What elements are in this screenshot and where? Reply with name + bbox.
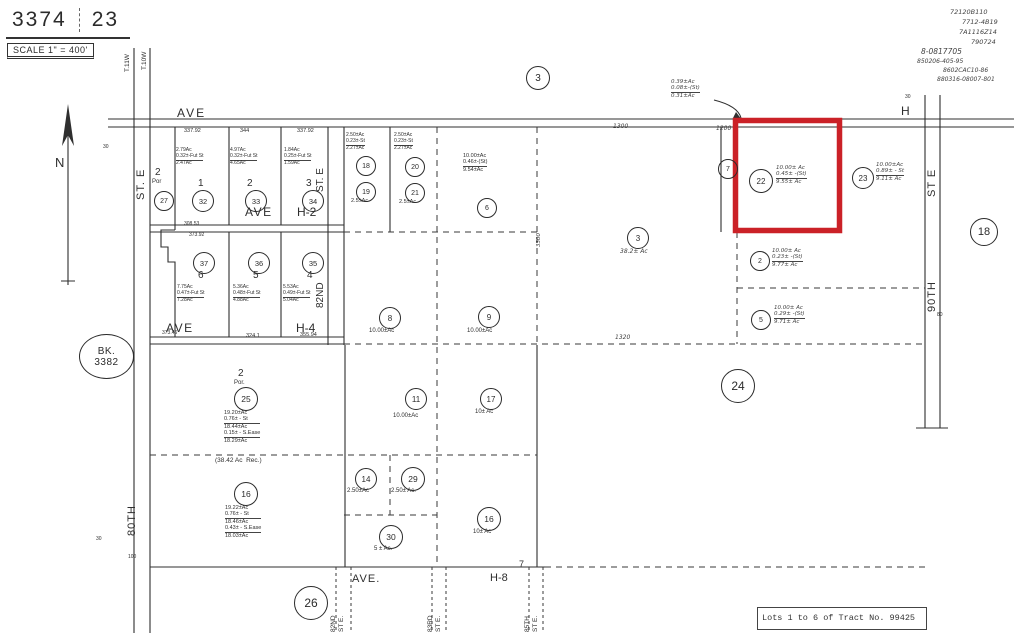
section-circle-26: 26 <box>294 586 328 620</box>
parcel-circle-14: 14 <box>355 468 377 490</box>
dim-373-46: 373.46 <box>162 331 177 337</box>
parcel-6-acreage: 10.00±Ac0.46±-(St)9.54±Ac <box>463 153 487 173</box>
parcel-circle-9: 9 <box>478 306 500 328</box>
street-85th-st-e: 85THST E. <box>524 616 539 632</box>
parcel-circle-18: 18 <box>356 156 376 176</box>
township-label-t10w: T.10W <box>141 52 149 70</box>
ave-h-label-west: AVE <box>177 106 206 120</box>
north-label: N <box>55 155 64 170</box>
map-linework <box>0 0 1024 633</box>
lot-1-number: 1 <box>198 178 204 190</box>
parcel-3-acreage: 38.2± Ac <box>620 248 648 255</box>
parcel-20-acreage: 2.50±Ac0.23±-St2.27±Ac <box>394 133 413 152</box>
parcel-circle-2: 2 <box>750 251 770 271</box>
tract-caption: Lots 1 to 6 of Tract No. 99425 <box>757 607 927 630</box>
street-82nd-label: 82ND <box>315 282 327 308</box>
dim-337-92-a: 337.92 <box>184 128 201 134</box>
parcel-circle-27: 27 <box>154 191 174 211</box>
lot-2-por-south-label: Por. <box>234 380 245 387</box>
parcel-circle-34: 34 <box>302 190 324 212</box>
ave-h8-label-h8: H-8 <box>490 572 508 585</box>
ave-h-label-east: H <box>901 104 910 118</box>
dim-373-92: 373.92 <box>189 233 204 239</box>
township-label-t11w: T.11W <box>124 54 132 72</box>
parcel-17-acreage: 10± Ac <box>475 409 493 416</box>
parcel-8-acreage: 10.00±Ac <box>369 328 394 335</box>
dashed-lines <box>150 127 930 567</box>
record-acreage-note: (38.42 Ac Rec.) <box>215 457 262 465</box>
lot-3-acreage: 1.84Ac0.25±-Fut St1.59Ac <box>284 148 311 167</box>
sheet-number: 3374 <box>12 8 80 32</box>
recorder-note-6: 850206-405-95 <box>917 58 963 65</box>
tick-80-right: 80 <box>937 313 943 319</box>
parcel-circle-33: 33 <box>245 190 267 212</box>
book-reference-line1: BK. <box>98 346 116 357</box>
tick-30-top-left: 30 <box>103 145 109 151</box>
recorder-note-5: 8-0817705 <box>921 48 962 57</box>
dim-344: 344 <box>240 128 249 134</box>
dim-3300: 3300 <box>536 233 542 247</box>
parcel-circle-17: 17 <box>480 388 502 410</box>
assessor-parcel-map: 3374 23 SCALE 1" = 400' BK. 3382 Lots 1 … <box>0 0 1024 633</box>
tick-30-bottom-left: 30 <box>96 537 102 543</box>
lot-6-acreage: 7.75Ac0.47±-Fut St7.28Ac <box>177 285 204 304</box>
section-circle-18: 18 <box>970 218 998 246</box>
parcel-25-acreage: 19.20±Ac0.76± - St18.44±Ac0.15± - S.Ease… <box>224 410 260 444</box>
parcel-circle-6: 6 <box>477 198 497 218</box>
lot-2-por-label: Por <box>152 179 161 186</box>
lot-2-acreage: 4.97Ac0.32±-Fut St4.65Ac <box>230 148 257 167</box>
page-number: 23 <box>80 8 119 32</box>
parcel-circle-22: 22 <box>749 169 773 193</box>
lot-3-number: 3 <box>306 178 312 190</box>
parcel-circle-32: 32 <box>192 190 214 212</box>
parcel-circle-21: 21 <box>405 183 425 203</box>
parcel-circle-29: 29 <box>401 467 425 491</box>
section-corner-7: 7 <box>519 559 524 570</box>
recorder-note-4: 790724 <box>971 39 996 47</box>
book-reference-line2: 3382 <box>94 357 118 368</box>
sheet-number-row: 3374 23 <box>6 6 130 39</box>
parcel-circle-16: 16 <box>234 482 258 506</box>
parcel-circle-7: 7 <box>718 159 738 179</box>
parcel-circle-23: 23 <box>852 167 874 189</box>
parcel-circle-8: 8 <box>379 307 401 329</box>
parcel-circle-20: 20 <box>405 157 425 177</box>
dim-355-94: 355.94 <box>300 332 317 338</box>
parcel-circle-19: 19 <box>356 182 376 202</box>
book-reference: BK. 3382 <box>79 334 134 379</box>
parcel-5-acreage: 10.00± Ac0.29± -(St)9.71± Ac <box>774 305 805 325</box>
dim-308-53: 308.53 <box>184 222 199 228</box>
street-80th-label: 80TH <box>126 505 139 536</box>
parcel-circle-5: 5 <box>751 310 771 330</box>
recorder-note-2: 7712-4B19 <box>962 19 998 27</box>
street-90th-st-e-upper: ST E <box>926 169 939 197</box>
road-widening-note: 0.39±Ac0.08±-(St)0.31±Ac <box>671 79 700 99</box>
parcel-circle-3: 3 <box>627 227 649 249</box>
lot-1-acreage: 2.79Ac0.32±-Fut St2.47Ac <box>176 148 203 167</box>
sheet-header: 3374 23 SCALE 1" = 400' <box>6 6 130 59</box>
section-circle-3: 3 <box>526 66 550 90</box>
section-circle-24: 24 <box>721 369 755 403</box>
lot-2-number: 2 <box>247 178 253 190</box>
lot-2-por-number: 2 <box>155 167 161 179</box>
parcel-16-acreage: 19.22±Ac0.76± - St18.46±Ac0.43± - S.Ease… <box>225 505 261 539</box>
dim-1300: 1300 <box>613 123 628 130</box>
parcel-9-acreage: 10.00±Ac <box>467 328 492 335</box>
parcel-11-acreage: 10.00±Ac <box>393 413 418 420</box>
parcel-23-acreage: 10.00±Ac0.89± - St9.11± Ac <box>876 162 904 182</box>
tick-30-top-right: 30 <box>905 95 911 101</box>
dim-337-92-b: 337.92 <box>297 128 314 134</box>
parcel-circle-36: 36 <box>248 252 270 274</box>
lot-2-por-south-number: 2 <box>238 368 244 380</box>
street-82nd-st-e-upper: ST. E <box>315 168 327 192</box>
street-80th-st-e-upper: ST. E <box>135 169 148 200</box>
street-82nd-st-e-lower: 82NDST E. <box>330 615 345 632</box>
parcel-18-acreage: 2.50±Ac0.23±-St2.27±Ac <box>346 133 365 152</box>
parcel-circle-35: 35 <box>302 252 324 274</box>
recorder-note-3: 7A1116Z14 <box>959 29 997 37</box>
recorder-note-1: 72120B110 <box>950 9 988 17</box>
dim-1320: 1320 <box>615 334 630 341</box>
parcel-circle-30: 30 <box>379 525 403 549</box>
parcel-2-acreage: 10.00± Ac0.23± -(St)9.77± Ac <box>772 248 803 268</box>
tick-100-bottom-left: 100 <box>128 555 136 561</box>
street-83rd-st-e: 83RDST E. <box>427 615 442 632</box>
ave-h8-label-ave: AVE. <box>352 573 380 586</box>
lot-5-acreage: 5.36Ac0.48±-Fut St4.88Ac <box>233 285 260 304</box>
street-90th-label: 90TH <box>926 281 939 312</box>
recorder-note-7: 8602CAC10-86 <box>943 67 988 74</box>
recorder-note-8: 880316-08007-801 <box>937 76 995 83</box>
parcel-circle-25: 25 <box>234 387 258 411</box>
scale-label: SCALE 1" = 400' <box>7 43 94 59</box>
parcel-circle-11: 11 <box>405 388 427 410</box>
dim-324-1: 324.1 <box>246 333 260 339</box>
parcel-22-acreage: 10.00± Ac0.45± -(St)9.55± Ac <box>776 165 807 185</box>
parcel-circle-37: 37 <box>193 252 215 274</box>
parcel-circle-16-south: 16 <box>477 507 501 531</box>
dim-1200: 1200 <box>716 125 731 132</box>
lot-4-acreage: 5.53Ac0.49±-Fut St5.04Ac <box>283 285 310 304</box>
